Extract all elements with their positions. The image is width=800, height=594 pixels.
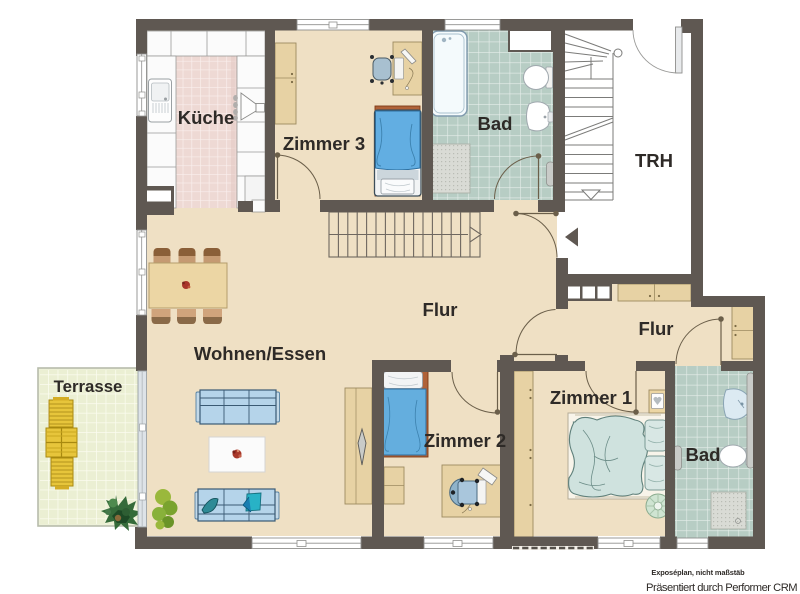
svg-text:Bad: Bad: [478, 113, 513, 134]
svg-text:Zimmer 1: Zimmer 1: [550, 387, 632, 408]
svg-text:Bad: Bad: [686, 444, 721, 465]
svg-text:Flur: Flur: [423, 299, 458, 320]
svg-text:Flur: Flur: [639, 318, 674, 339]
svg-text:Küche: Küche: [178, 107, 235, 128]
svg-text:Zimmer 2: Zimmer 2: [424, 430, 506, 451]
svg-text:Präsentiert durch Performer CR: Präsentiert durch Performer CRM: [646, 582, 797, 594]
svg-text:Terrasse: Terrasse: [54, 377, 123, 396]
svg-text:TRH: TRH: [635, 150, 673, 171]
svg-text:Zimmer 3: Zimmer 3: [283, 133, 365, 154]
svg-text:Wohnen/Essen: Wohnen/Essen: [194, 343, 326, 364]
svg-text:Exposéplan, nicht maßstäb: Exposéplan, nicht maßstäb: [651, 568, 745, 577]
